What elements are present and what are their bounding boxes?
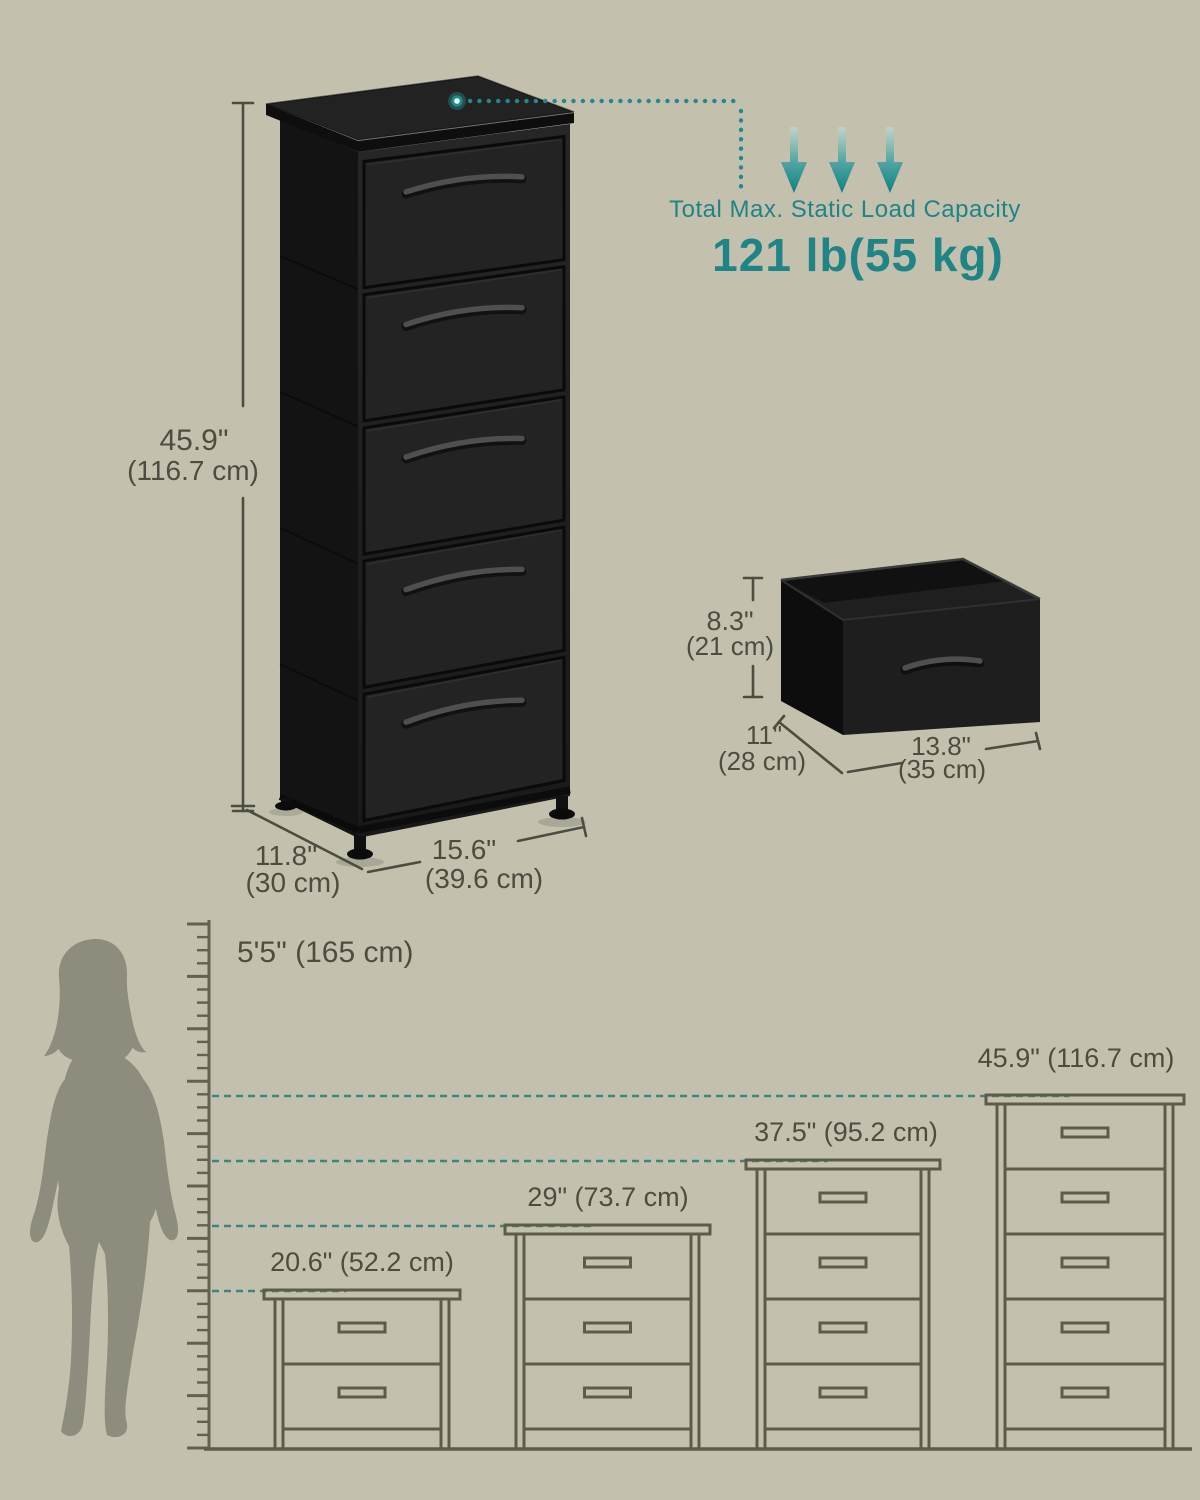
foot-shadow bbox=[538, 817, 586, 827]
drawer-rim-front bbox=[781, 580, 1040, 620]
main-dimension-lines bbox=[232, 103, 586, 872]
drawer-interior-shadow bbox=[781, 559, 1006, 603]
drawer-handle-outline bbox=[1062, 1258, 1108, 1267]
comparison-dresser-3-drawer bbox=[505, 1225, 710, 1449]
drawer-handle-outline bbox=[1062, 1193, 1108, 1202]
drawer-handle-outline bbox=[585, 1388, 631, 1397]
load-point-indicator-glow bbox=[448, 92, 466, 110]
fabric-drawer bbox=[364, 267, 564, 421]
height-cm-label: (116.7 cm) bbox=[127, 456, 259, 485]
top-board-surface bbox=[266, 76, 574, 140]
drawer-width-cm-label: (35 cm) bbox=[898, 756, 986, 783]
load-arrow-icon bbox=[829, 127, 855, 193]
drawer-box-illustration bbox=[781, 559, 1040, 735]
depth-inch-label: 11.8" bbox=[255, 841, 317, 870]
depth-cm-label: (30 cm) bbox=[246, 868, 341, 897]
dresser-foot bbox=[347, 849, 373, 860]
height-ruler bbox=[187, 920, 209, 1450]
product-dimension-infographic: 45.9" (116.7 cm) 11.8" (30 cm) 15.6" (39… bbox=[0, 0, 1200, 1500]
dresser-foot bbox=[275, 802, 297, 811]
load-point-indicator bbox=[454, 98, 460, 104]
variant-height-label-3drawer: 29" (73.7 cm) bbox=[527, 1183, 688, 1211]
drawer-handle-outline bbox=[585, 1323, 631, 1332]
drawer-handle-outline bbox=[820, 1258, 866, 1267]
scene-graphics bbox=[0, 0, 1200, 1500]
main-dresser-drawers bbox=[364, 137, 564, 821]
main-dresser-side-panel bbox=[280, 120, 358, 838]
height-inch-label: 45.9" bbox=[159, 425, 228, 457]
drawer-handle-outline bbox=[1062, 1388, 1108, 1397]
dresser-top-cap bbox=[746, 1160, 940, 1169]
drawer-handle-outline bbox=[339, 1323, 385, 1332]
dresser-side-post bbox=[757, 1169, 765, 1449]
side-panel-seams bbox=[280, 256, 358, 701]
load-arrow-icon bbox=[781, 127, 807, 193]
comparison-dresser-5-drawer bbox=[986, 1095, 1184, 1449]
main-dresser-front bbox=[358, 124, 570, 838]
dresser-top-cap bbox=[505, 1225, 710, 1234]
dresser-side-post bbox=[516, 1234, 524, 1449]
woman-silhouette bbox=[30, 939, 178, 1437]
load-capacity-callout bbox=[448, 92, 903, 193]
dresser-foot bbox=[549, 809, 575, 820]
drawer-dimension-lines bbox=[744, 578, 1040, 773]
fabric-drawer bbox=[364, 137, 564, 288]
foot-shadow bbox=[269, 808, 303, 816]
dresser-side-post bbox=[997, 1104, 1005, 1449]
variant-height-label-4drawer: 37.5" (95.2 cm) bbox=[754, 1118, 938, 1146]
load-arrow-icon bbox=[877, 127, 903, 193]
bottom-rail bbox=[358, 790, 570, 830]
drawer-handle bbox=[406, 569, 522, 589]
dresser-top-cap bbox=[264, 1290, 460, 1299]
load-capacity-value: 121 lb(55 kg) bbox=[712, 228, 1004, 282]
dresser-side-post bbox=[921, 1169, 929, 1449]
drawer-handle-outline bbox=[820, 1388, 866, 1397]
drawer-handle bbox=[406, 176, 522, 192]
variant-height-label-5drawer: 45.9" (116.7 cm) bbox=[978, 1044, 1175, 1072]
drawer-handle bbox=[406, 700, 522, 722]
dresser-side-post bbox=[275, 1299, 283, 1449]
drawer-handle bbox=[905, 659, 980, 668]
drawer-rim bbox=[781, 559, 1040, 599]
dresser-top-cap bbox=[986, 1095, 1184, 1104]
drawer-handle-outline bbox=[1062, 1128, 1108, 1137]
drawer-handle-outline bbox=[585, 1258, 631, 1267]
drawer-handle bbox=[406, 307, 522, 324]
fabric-drawer bbox=[364, 527, 564, 687]
top-board-edge bbox=[266, 104, 574, 152]
foot-shadow bbox=[336, 857, 384, 867]
width-inch-label: 15.6" bbox=[432, 835, 496, 864]
main-dresser-illustration bbox=[266, 76, 586, 867]
comparison-dresser-2-drawer bbox=[264, 1290, 460, 1449]
comparison-dresser-4-drawer bbox=[746, 1160, 940, 1449]
dresser-side-post bbox=[691, 1234, 699, 1449]
drawer-front-face bbox=[843, 599, 1040, 735]
drawer-handle-outline bbox=[1062, 1323, 1108, 1332]
drawer-handle-outline bbox=[820, 1323, 866, 1332]
drawer-handle-outline bbox=[339, 1388, 385, 1397]
drawer-interior bbox=[781, 559, 1040, 620]
person-height-label: 5'5" (165 cm) bbox=[237, 936, 413, 970]
drawer-width-line bbox=[848, 763, 902, 772]
drawer-handle bbox=[406, 438, 522, 457]
width-cm-label: (39.6 cm) bbox=[425, 864, 543, 893]
fabric-drawer bbox=[364, 397, 564, 554]
width-dimension-line bbox=[368, 862, 420, 872]
drawer-height-cm-label: (21 cm) bbox=[686, 633, 774, 660]
fabric-drawer bbox=[364, 657, 564, 820]
load-capacity-title: Total Max. Static Load Capacity bbox=[669, 196, 1021, 224]
load-point-indicator-ring bbox=[451, 95, 462, 106]
drawer-handle-outline bbox=[820, 1193, 866, 1202]
dresser-side-post bbox=[1165, 1104, 1173, 1449]
drawer-side-face bbox=[781, 580, 843, 735]
variant-height-label-2drawer: 20.6" (52.2 cm) bbox=[270, 1248, 454, 1276]
dresser-side-post bbox=[441, 1299, 449, 1449]
drawer-depth-cm-label: (28 cm) bbox=[718, 748, 806, 775]
bottom-rail-side bbox=[280, 797, 358, 830]
